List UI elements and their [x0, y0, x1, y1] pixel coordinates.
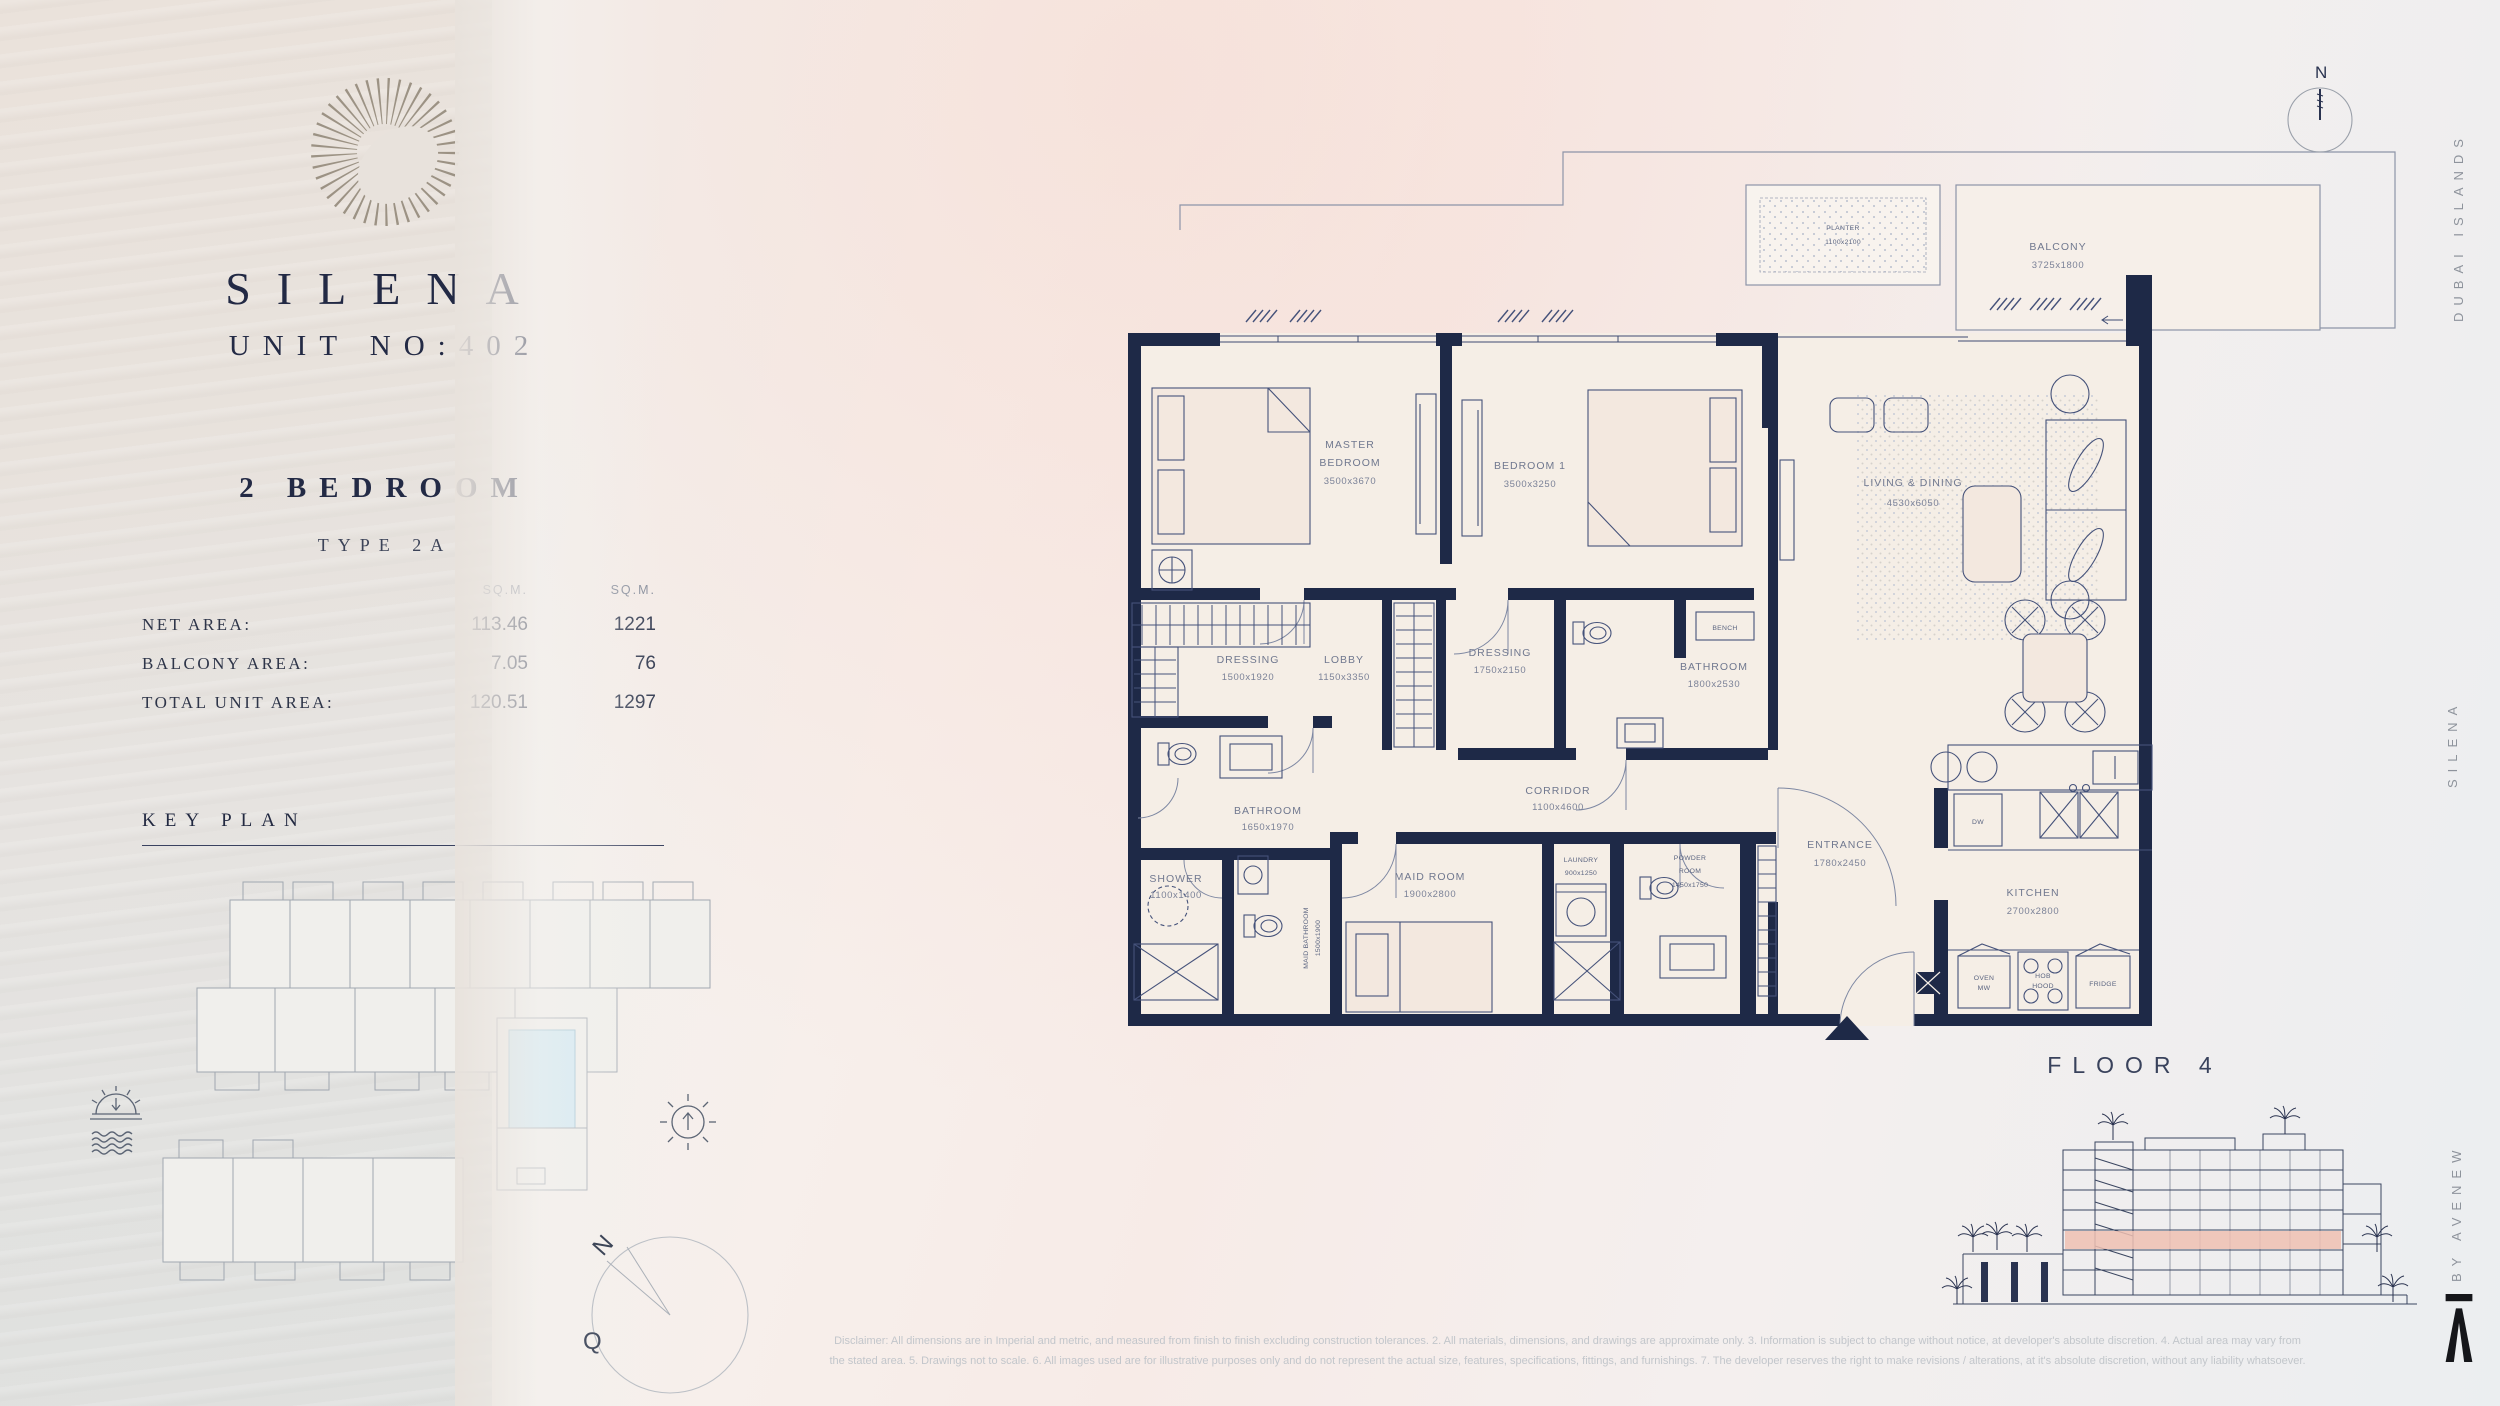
sun-orientation-icon — [648, 1082, 728, 1162]
room-label: MAID ROOM — [1395, 871, 1466, 883]
bench-label: BENCH — [1712, 625, 1737, 632]
margin-label-dubai-islands: DUBAI ISLANDS — [2451, 52, 2466, 322]
room-label: LAUNDRY — [1564, 857, 1599, 864]
room-dim: 1100x1400 — [1150, 890, 1202, 901]
brochure-page: SILENA UNIT NO:402 2 BEDROOM TYPE 2A SQ.… — [0, 0, 2500, 1406]
room-label: BALCONY — [2029, 241, 2086, 253]
room-label: ROOM — [1679, 868, 1701, 875]
room-label: LOBBY — [1324, 654, 1364, 666]
room-label: DRESSING — [1469, 647, 1532, 659]
room-dim: 3725x1800 — [2032, 260, 2084, 271]
panel-fade-edge — [455, 0, 665, 1406]
room-label: SHOWER — [1149, 873, 1202, 885]
compass-q-label: Q — [583, 1328, 602, 1355]
room-dim: 4530x6050 — [1887, 498, 1939, 509]
planter-bed — [1760, 198, 1926, 272]
appliance-label: OVEN — [1974, 975, 1994, 982]
room-label: DRESSING — [1217, 654, 1280, 666]
room-dim: 1750x2150 — [1474, 665, 1526, 676]
avenew-logo-icon — [2438, 1294, 2480, 1364]
room-label: CORRIDOR — [1525, 785, 1590, 797]
appliance-label: DW — [1972, 819, 1984, 826]
room-label: KITCHEN — [2006, 887, 2059, 899]
appliance-label: HOB — [2035, 973, 2051, 980]
room-label: MAID BATHROOM — [1303, 907, 1310, 969]
room-label: BEDROOM 1 — [1494, 460, 1566, 472]
left-panel: SILENA UNIT NO:402 2 BEDROOM TYPE 2A SQ.… — [0, 0, 492, 1406]
room-dim: 1450x1750 — [1672, 882, 1708, 889]
disclaimer: Disclaimer: All dimensions are in Imperi… — [815, 1331, 2320, 1371]
appliance-label: HOOD — [2032, 983, 2054, 990]
floor-label: FLOOR 4 — [2030, 1052, 2240, 1079]
floor-plan: MASTER BEDROOM 3500x3670 BEDROOM 1 3500x… — [1118, 88, 2418, 1058]
north-compass-icon: N — [2262, 50, 2382, 170]
room-dim: 3500x3670 — [1324, 476, 1376, 487]
sunset-waves-icon — [84, 1082, 164, 1162]
room-label: BATHROOM — [1234, 805, 1302, 817]
room-dim: 1150x3350 — [1318, 672, 1370, 683]
silena-spiral-logo-icon — [295, 68, 480, 243]
disclaimer-line1: Disclaimer: All dimensions are in Imperi… — [815, 1331, 2320, 1351]
room-dim: 900x1250 — [1565, 870, 1597, 877]
room-dim: 1900x2800 — [1404, 889, 1456, 900]
keyplan-title: KEY PLAN — [142, 810, 307, 832]
room-dim: 3500x3250 — [1504, 479, 1556, 490]
north-label: N — [2315, 63, 2327, 82]
margin-label-by-avenew: BY AVENEW — [2449, 1112, 2464, 1282]
maid-room-furniture — [1346, 922, 1492, 1012]
floor4-highlight-band — [2065, 1231, 2341, 1249]
room-dim: 1800x2530 — [1688, 679, 1740, 690]
room-label: BEDROOM — [1319, 457, 1380, 469]
room-dim: 1780x2450 — [1814, 858, 1866, 869]
window-louvres — [1246, 310, 1573, 322]
room-label: ENTRANCE — [1807, 839, 1873, 851]
disclaimer-line2: the stated area. 5. Drawings not to scal… — [815, 1351, 2320, 1371]
room-dim: 1500x1920 — [1222, 672, 1274, 683]
compass-n-label: N — [587, 1230, 619, 1261]
room-label: POWDER — [1674, 855, 1706, 862]
room-dim: 1100x2100 — [1825, 239, 1861, 246]
building-elevation — [1945, 1092, 2425, 1332]
appliance-label: MW — [1978, 985, 1991, 992]
room-label: MASTER — [1325, 439, 1375, 451]
appliance-label: FRIDGE — [2089, 981, 2117, 988]
room-dim: 2700x2800 — [2007, 906, 2059, 917]
room-label: BATHROOM — [1680, 661, 1748, 673]
room-dim: 1500x1900 — [1315, 920, 1322, 956]
margin-label-silena: SILENA — [2445, 668, 2460, 788]
keyplan-compass-icon: N Q — [575, 1225, 755, 1405]
room-dim: 1100x4600 — [1532, 802, 1584, 813]
room-dim: 1650x1970 — [1242, 822, 1294, 833]
room-label: PLANTER — [1826, 225, 1859, 232]
room-label: LIVING & DINING — [1863, 477, 1962, 489]
